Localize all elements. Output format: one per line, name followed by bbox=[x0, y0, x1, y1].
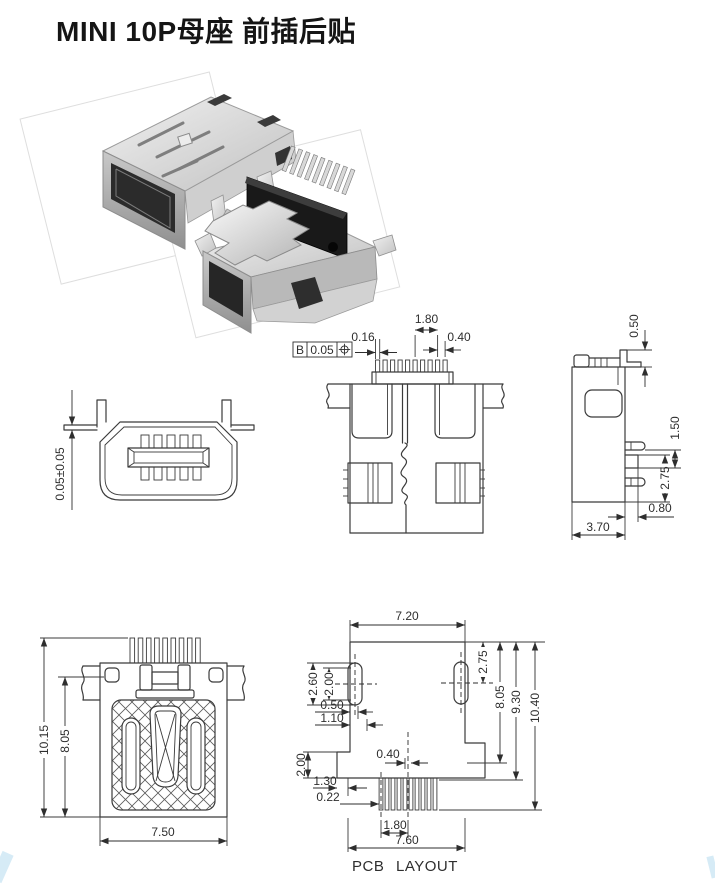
product-photos bbox=[45, 75, 380, 320]
side-view-body bbox=[572, 350, 645, 502]
bottom-view-pins bbox=[376, 360, 448, 372]
dim-body-width: 7.50 bbox=[151, 825, 175, 839]
dim-footprint-width: 7.60 bbox=[395, 833, 419, 847]
dim-body-height: 8.05 bbox=[58, 729, 72, 753]
dim-slot-inner-length: 2.00 bbox=[322, 672, 336, 696]
dim-slot-offset-a: 0.50 bbox=[320, 698, 344, 712]
dim-depth: 3.70 bbox=[586, 520, 610, 534]
front-view-dimensions: 0.05±0.05 bbox=[53, 390, 72, 510]
feature-control-frame: B 0.05 bbox=[293, 342, 352, 357]
dim-stub-length: 0.80 bbox=[648, 501, 672, 515]
dim-pin-width: 0.16 bbox=[351, 330, 375, 344]
datasheet-page: MINI 10P母座 前插后贴 bbox=[0, 0, 715, 884]
bottom-view-pad-right bbox=[436, 463, 485, 503]
bottom-view-drawing: B 0.05 0.16 1.80 0.40 bbox=[285, 293, 520, 548]
dim-leg-span: 2.75 bbox=[658, 466, 672, 490]
bottom-view-dimensions: 0.16 1.80 0.40 bbox=[351, 312, 471, 357]
dim-slot-offset-b: 1.10 bbox=[320, 711, 344, 725]
dim-pad-width: 0.22 bbox=[316, 790, 340, 804]
side-view-dimensions: 0.50 1.50 2.75 0.80 3.70 bbox=[572, 314, 682, 540]
pcb-layout-caption: PCB LAYOUT bbox=[352, 858, 458, 875]
dim-pin-pitch: 0.40 bbox=[447, 330, 471, 344]
dim-leg-step: 1.50 bbox=[668, 416, 682, 440]
dim-depth-to-pads: 9.30 bbox=[509, 690, 523, 714]
dim-flange-height: 2.00 bbox=[294, 753, 308, 777]
side-view-drawing: 0.50 1.50 2.75 0.80 3.70 bbox=[548, 292, 713, 547]
dim-tab-thickness: 0.50 bbox=[627, 314, 641, 338]
scan-artifact-right bbox=[706, 855, 715, 878]
front-view-shell bbox=[64, 400, 254, 500]
dim-pad-offset: 0.40 bbox=[376, 747, 400, 761]
bottom-view-body bbox=[327, 339, 505, 533]
dim-coplanarity: 0.05±0.05 bbox=[53, 447, 67, 501]
dim-body-width: 7.20 bbox=[395, 609, 419, 623]
pcb-layout-drawing: 7.20 2.75 8.05 9.30 10.40 2.60 bbox=[295, 592, 557, 862]
top-view-drawing: 10.15 8.05 7.50 bbox=[28, 598, 300, 868]
dim-slot-length: 2.60 bbox=[306, 672, 320, 696]
front-view-drawing: 0.05±0.05 bbox=[46, 378, 286, 528]
front-view-pins bbox=[141, 435, 201, 480]
dim-depth-to-flange: 8.05 bbox=[493, 685, 507, 709]
scan-artifact-left bbox=[0, 851, 14, 883]
page-title: MINI 10P母座 前插后贴 bbox=[56, 10, 356, 50]
dim-overall-depth: 10.40 bbox=[528, 693, 542, 723]
dim-slot-center-offset: 2.75 bbox=[476, 650, 490, 674]
position-tolerance-icon bbox=[339, 344, 350, 355]
dim-pad-group-pitch: 1.80 bbox=[383, 818, 407, 832]
fcf-tolerance: 0.05 bbox=[310, 343, 334, 357]
pcb-footprint bbox=[335, 642, 495, 820]
top-view-pins bbox=[130, 638, 200, 663]
dim-edge-step: 1.30 bbox=[313, 774, 337, 788]
fcf-datum: B bbox=[296, 343, 304, 357]
dim-group-pitch: 1.80 bbox=[415, 312, 439, 326]
dim-overall-height: 10.15 bbox=[37, 725, 51, 755]
pcb-dimensions: 7.20 2.75 8.05 9.30 10.40 2.60 bbox=[294, 609, 545, 852]
top-view-body bbox=[82, 638, 246, 817]
